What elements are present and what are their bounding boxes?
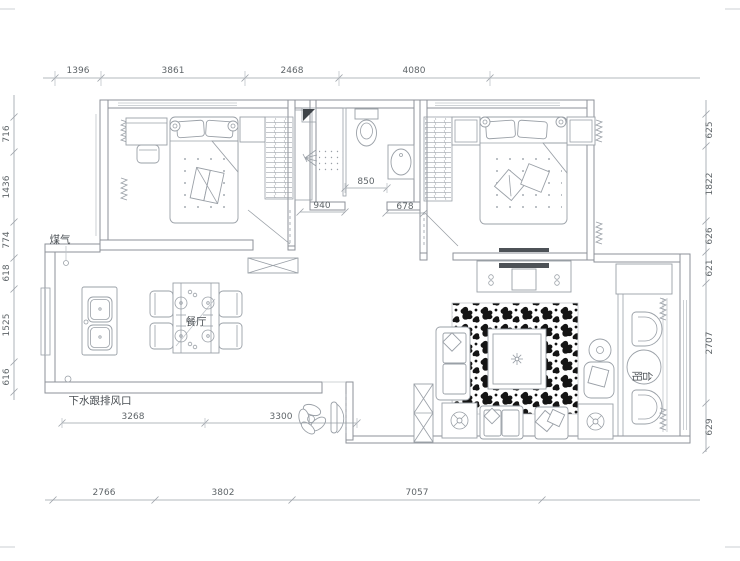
door-swing	[424, 212, 458, 246]
toilet	[355, 109, 378, 146]
armchair-south	[535, 407, 568, 439]
side-table-lamp	[442, 403, 477, 438]
double-bed	[480, 117, 567, 224]
dimensions-top: 1396 3861 2468 4080	[43, 66, 700, 86]
dimensions-bottom: 2766 3802 7057	[45, 488, 700, 504]
dim-top-2: 3861	[162, 66, 185, 76]
dining-chair	[219, 291, 242, 317]
balcony: 阳台	[616, 264, 672, 436]
dining-room-label: 餐厅	[186, 315, 207, 328]
bed-tray	[190, 167, 224, 203]
drain-vent-label: 下水跟排风口	[69, 394, 132, 407]
dim-right-5: 2707	[705, 332, 715, 355]
dim-top-3: 2468	[281, 66, 304, 76]
bedside-lamp	[556, 117, 566, 127]
balcony-chair	[632, 390, 662, 424]
dining-chair	[150, 291, 173, 317]
door-swing	[248, 210, 290, 244]
shower	[303, 147, 343, 171]
dim-3268: 3268	[122, 412, 145, 422]
desk	[126, 118, 167, 163]
dim-right-1: 625	[705, 121, 715, 138]
bedside-lamp	[228, 121, 238, 131]
dining-chair	[150, 323, 173, 349]
dim-left-1: 716	[2, 125, 12, 142]
dim-left-6: 616	[2, 368, 12, 385]
tv-cabinet	[477, 261, 571, 292]
drain-point	[65, 376, 71, 382]
bathroom: 850	[302, 108, 414, 196]
entry-door	[331, 394, 346, 434]
loveseat	[480, 406, 523, 439]
armchair-east	[584, 362, 614, 398]
shoe-cabinet	[414, 384, 433, 442]
dim-bath-door: 850	[342, 177, 391, 193]
dim-left-4: 618	[2, 264, 12, 281]
dining-chair	[219, 323, 242, 349]
nightstand	[452, 117, 480, 145]
dim-top-4: 4080	[403, 66, 426, 76]
dim-bottom-3: 7057	[406, 488, 429, 498]
round-side-table	[589, 339, 611, 361]
bedside-lamp	[480, 117, 490, 127]
double-bed	[170, 117, 238, 223]
wardrobe	[265, 117, 293, 199]
tv	[499, 263, 549, 268]
dimensions-right: 625 1822 626 621 2707 629	[703, 100, 716, 454]
bedroom-tv	[499, 248, 549, 252]
dim-left-5: 1525	[2, 314, 12, 337]
dim-678: 678	[396, 202, 413, 212]
sofa	[436, 327, 470, 400]
dim-right-6: 629	[705, 418, 715, 435]
balcony-table: 阳台	[627, 350, 661, 384]
kitchen-sink-island	[82, 287, 117, 355]
hallway: 940 678	[248, 201, 428, 273]
bedroom-2	[424, 117, 602, 252]
bedside-lamp	[170, 121, 180, 131]
cabinet	[240, 117, 265, 142]
nightstand	[567, 117, 595, 145]
gas-label: 煤气	[50, 233, 71, 246]
dim-right-2: 1822	[705, 173, 715, 196]
balcony-label: 阳台	[631, 371, 655, 382]
dim-bottom-2: 3802	[212, 488, 235, 498]
dimensions-left: 716 1436 774 618 1525 616	[2, 95, 18, 400]
dim-right-3: 626	[705, 227, 715, 244]
hall-cabinet	[248, 258, 298, 273]
entry-plant	[298, 402, 329, 436]
wardrobe	[424, 117, 452, 201]
dim-850: 850	[357, 177, 374, 187]
dim-right-4: 621	[705, 259, 715, 276]
coffee-table	[488, 329, 546, 389]
bedroom-1	[121, 117, 293, 244]
dining-set: 餐厅	[150, 283, 242, 353]
dim-left-2: 1436	[2, 175, 12, 198]
dim-940: 940	[313, 201, 330, 211]
dim-top-1: 1396	[67, 66, 90, 76]
gas-meter	[64, 261, 69, 266]
kitchen-dining: 餐厅 煤气 下水跟排风口	[50, 233, 243, 407]
living-room	[298, 261, 614, 442]
balcony-desk	[616, 264, 672, 294]
side-table-lamp	[578, 404, 613, 439]
floor-plan-canvas: 850 940 678	[0, 0, 740, 561]
dim-3300: 3300	[270, 412, 293, 422]
dim-left-3: 774	[2, 231, 12, 248]
wash-basin	[388, 145, 414, 179]
balcony-chair	[632, 312, 662, 346]
table-flower	[511, 353, 523, 365]
floor-plan-drawing: 850 940 678	[0, 0, 740, 561]
dim-bottom-1: 2766	[93, 488, 116, 498]
